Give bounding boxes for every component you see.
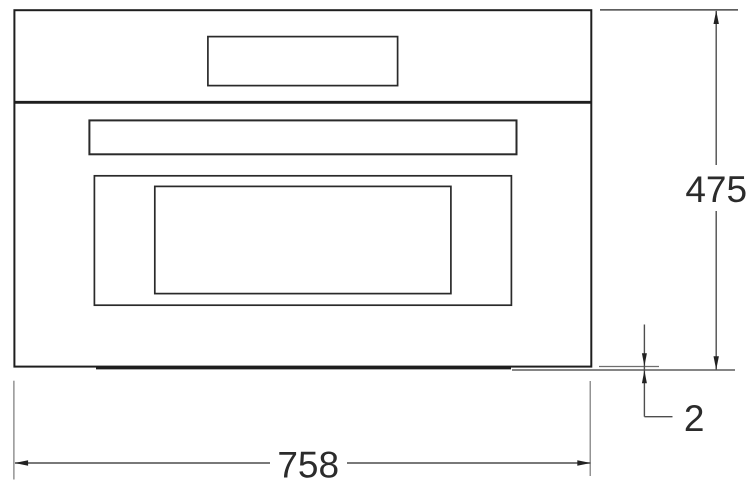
svg-text:475: 475 <box>685 169 747 210</box>
svg-text:758: 758 <box>277 445 339 486</box>
svg-text:2: 2 <box>684 398 705 439</box>
